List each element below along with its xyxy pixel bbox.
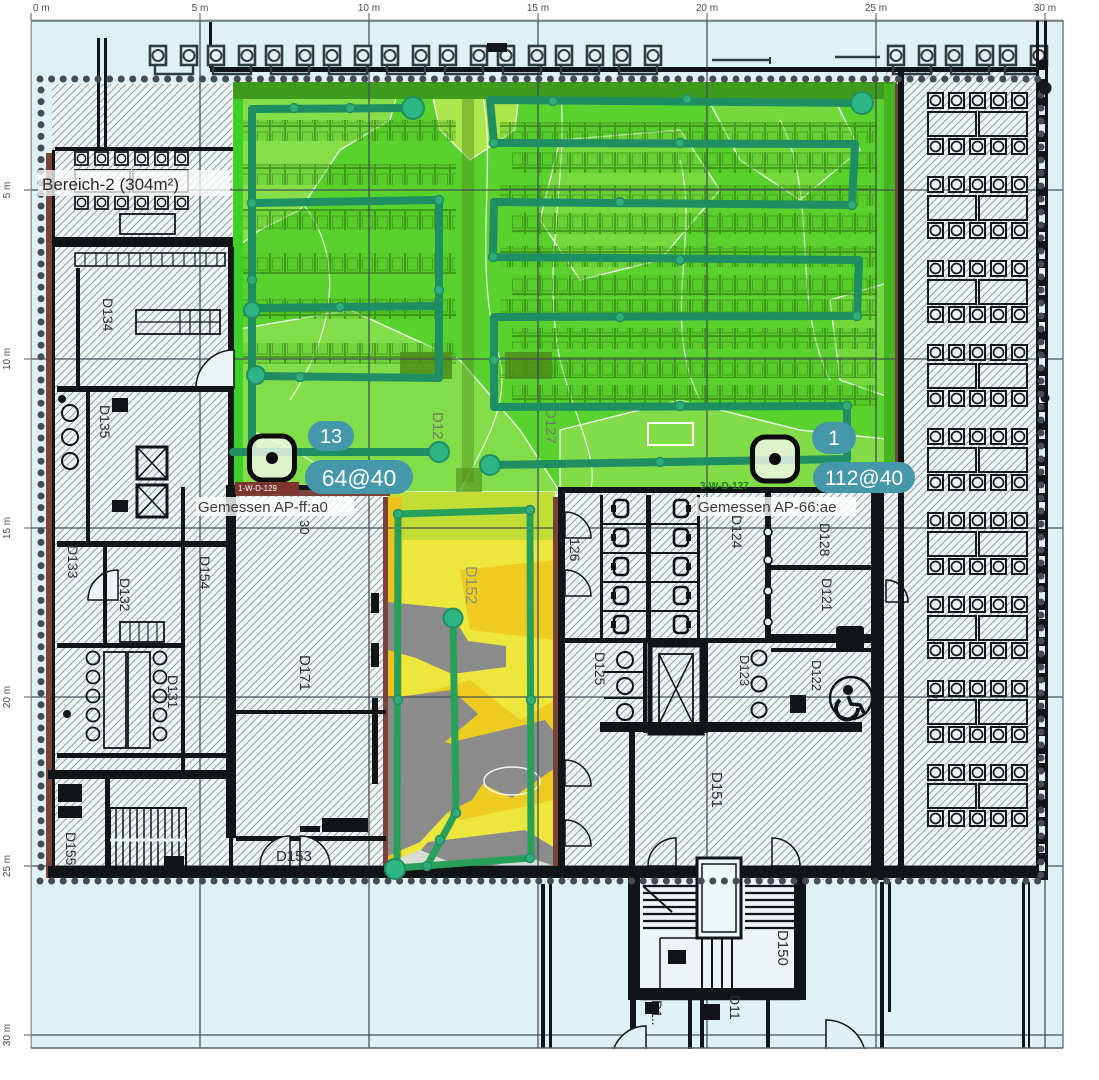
svg-text:D121: D121: [819, 578, 835, 612]
svg-text:3-W-D-127: 3-W-D-127: [700, 481, 749, 492]
svg-text:30: 30: [297, 520, 312, 534]
svg-text:D171: D171: [296, 655, 313, 691]
svg-text:D125: D125: [592, 652, 608, 686]
svg-text:D124: D124: [729, 515, 745, 549]
svg-text:10 m: 10 m: [2, 348, 13, 370]
svg-text:D132: D132: [117, 578, 133, 612]
svg-text:30 m: 30 m: [1034, 3, 1056, 14]
svg-text:D133: D133: [65, 545, 81, 579]
svg-text:D153: D153: [276, 848, 312, 865]
svg-text:20 m: 20 m: [696, 3, 718, 14]
svg-text:112@40: 112@40: [825, 467, 903, 490]
svg-text:10 m: 10 m: [358, 3, 380, 14]
svg-text:0 m: 0 m: [33, 3, 50, 14]
svg-text:D11: D11: [727, 995, 743, 1020]
svg-text:D151: D151: [708, 772, 725, 808]
svg-text:D134: D134: [100, 298, 116, 332]
svg-text:25 m: 25 m: [2, 855, 13, 877]
svg-text:Bereich-2 (304m²): Bereich-2 (304m²): [42, 175, 179, 194]
svg-text:64@40: 64@40: [322, 465, 397, 491]
svg-text:D127: D127: [542, 408, 559, 444]
svg-text:D135: D135: [97, 405, 113, 439]
svg-text:5 m: 5 m: [2, 182, 13, 199]
svg-text:20 m: 20 m: [2, 686, 13, 708]
svg-text:1-W-D-129: 1-W-D-129: [238, 484, 278, 493]
svg-text:D150: D150: [774, 930, 791, 966]
svg-text:D123: D123: [737, 655, 752, 686]
svg-text:1: 1: [828, 427, 840, 450]
svg-text:Gemessen AP-ff:a0: Gemessen AP-ff:a0: [198, 499, 328, 516]
svg-text:Gemessen AP-66:ae: Gemessen AP-66:ae: [698, 499, 836, 516]
svg-text:D12: D12: [429, 412, 446, 440]
svg-text:13: 13: [320, 426, 342, 448]
svg-text:D131: D131: [165, 675, 181, 709]
svg-text:D128: D128: [817, 523, 833, 557]
svg-text:30 m: 30 m: [2, 1024, 13, 1046]
svg-text:D155: D155: [63, 832, 79, 866]
svg-text:15 m: 15 m: [527, 3, 549, 14]
svg-text:25 m: 25 m: [865, 3, 887, 14]
svg-text:5 m: 5 m: [192, 3, 209, 14]
svg-text:15 m: 15 m: [2, 517, 13, 539]
svg-text:D122: D122: [809, 660, 824, 691]
svg-text:D152: D152: [462, 566, 479, 604]
svg-text:D154: D154: [197, 556, 213, 590]
